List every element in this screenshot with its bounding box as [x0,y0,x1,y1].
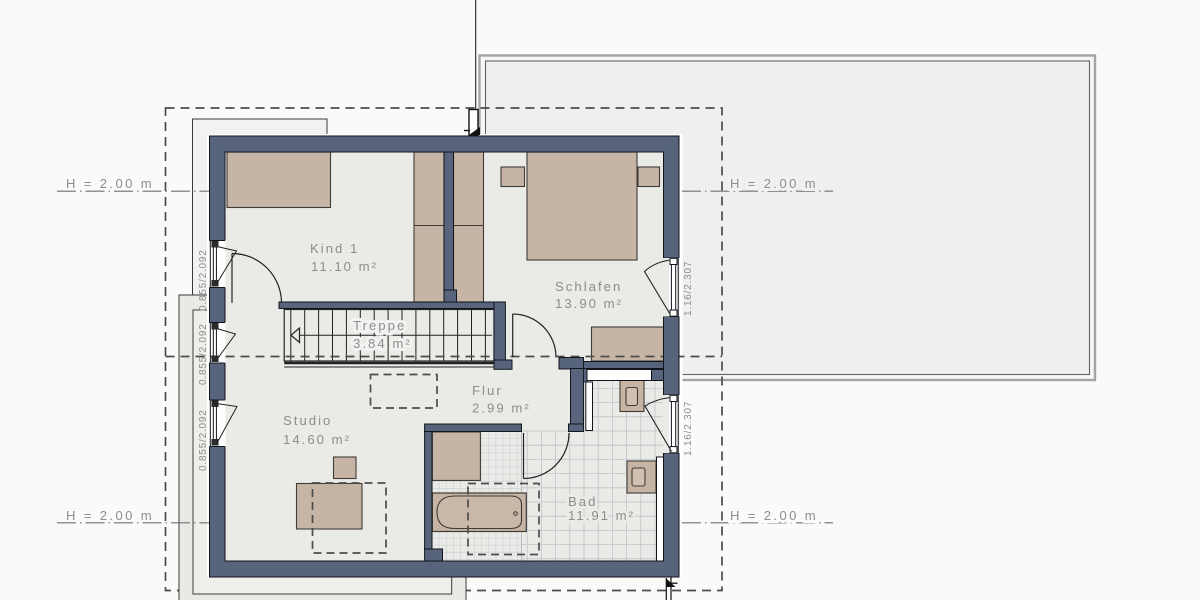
svg-text:1.16/2.307: 1.16/2.307 [683,401,694,456]
svg-text:14.60 m²: 14.60 m² [283,432,351,447]
svg-text:2.99 m²: 2.99 m² [472,401,531,416]
svg-text:11.10 m²: 11.10 m² [311,259,378,274]
svg-text:11.91 m²: 11.91 m² [568,508,635,523]
svg-text:Kind 1: Kind 1 [310,241,359,256]
svg-text:H = 2.00 m: H = 2.00 m [66,508,154,523]
svg-text:Schlafen: Schlafen [555,279,622,294]
svg-text:3.84 m²: 3.84 m² [353,336,412,351]
svg-text:Studio: Studio [283,413,332,428]
svg-text:H = 2.00 m: H = 2.00 m [730,508,818,523]
svg-text:H = 2.00 m: H = 2.00 m [730,176,818,191]
svg-text:13.90 m²: 13.90 m² [555,296,623,311]
svg-text:0.855/2.092: 0.855/2.092 [198,249,209,311]
svg-text:0.855/2.092: 0.855/2.092 [198,409,209,471]
svg-text:1.16/2.307: 1.16/2.307 [683,261,694,316]
svg-text:H = 2.00 m: H = 2.00 m [66,176,154,191]
svg-text:Flur: Flur [472,383,503,398]
svg-text:Treppe: Treppe [353,318,406,333]
svg-text:Bad: Bad [568,494,597,509]
svg-text:0.855/2.092: 0.855/2.092 [198,323,209,385]
